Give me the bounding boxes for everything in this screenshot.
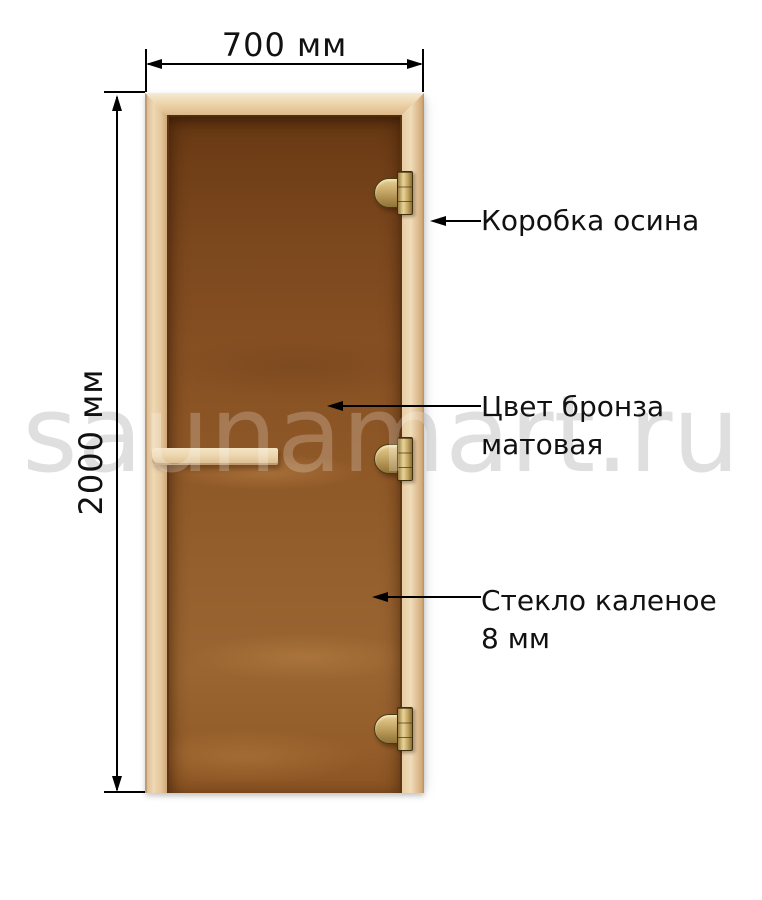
color-callout-line2: матовая: [481, 426, 664, 464]
width-dimension-line: [148, 63, 421, 65]
extension-line-top: [104, 91, 145, 93]
glass-callout-label: Стекло каленое 8 мм: [481, 582, 717, 658]
width-arrow-right-icon: [407, 59, 423, 69]
color-callout-line1: Цвет бронза: [481, 388, 664, 426]
glass-callout-line2: 8 мм: [481, 620, 717, 658]
hinge-barrel: [397, 707, 413, 751]
glass-callout-arrow-icon: [372, 592, 388, 602]
frame-callout-label: Коробка осина: [481, 202, 699, 240]
height-dimension-line: [116, 97, 118, 790]
frame-callout-arrow-icon: [430, 216, 446, 226]
width-arrow-left-icon: [146, 59, 162, 69]
extension-line-right: [422, 49, 424, 92]
door-frame-left: [145, 93, 167, 793]
extension-line-left: [145, 49, 147, 92]
glass-callout-line1: Стекло каленое: [481, 582, 717, 620]
sauna-door: [145, 93, 424, 793]
frame-callout-line: [444, 220, 481, 222]
door-handle: [152, 448, 278, 465]
height-arrow-down-icon: [112, 776, 122, 792]
color-callout-line: [342, 405, 481, 407]
color-callout-arrow-icon: [327, 401, 343, 411]
glass-callout-line: [388, 596, 481, 598]
product-diagram: saunamart.ru saunamart.ru 700 мм 2000 мм: [0, 0, 762, 900]
extension-line-bottom: [104, 791, 145, 793]
height-dimension-label: 2000 мм: [72, 369, 110, 516]
width-dimension-label: 700 мм: [146, 26, 423, 64]
door-frame-top: [145, 93, 424, 115]
hinge-barrel: [397, 171, 413, 215]
height-arrow-up-icon: [112, 95, 122, 111]
color-callout-label: Цвет бронза матовая: [481, 388, 664, 464]
hinge-barrel: [397, 437, 413, 481]
